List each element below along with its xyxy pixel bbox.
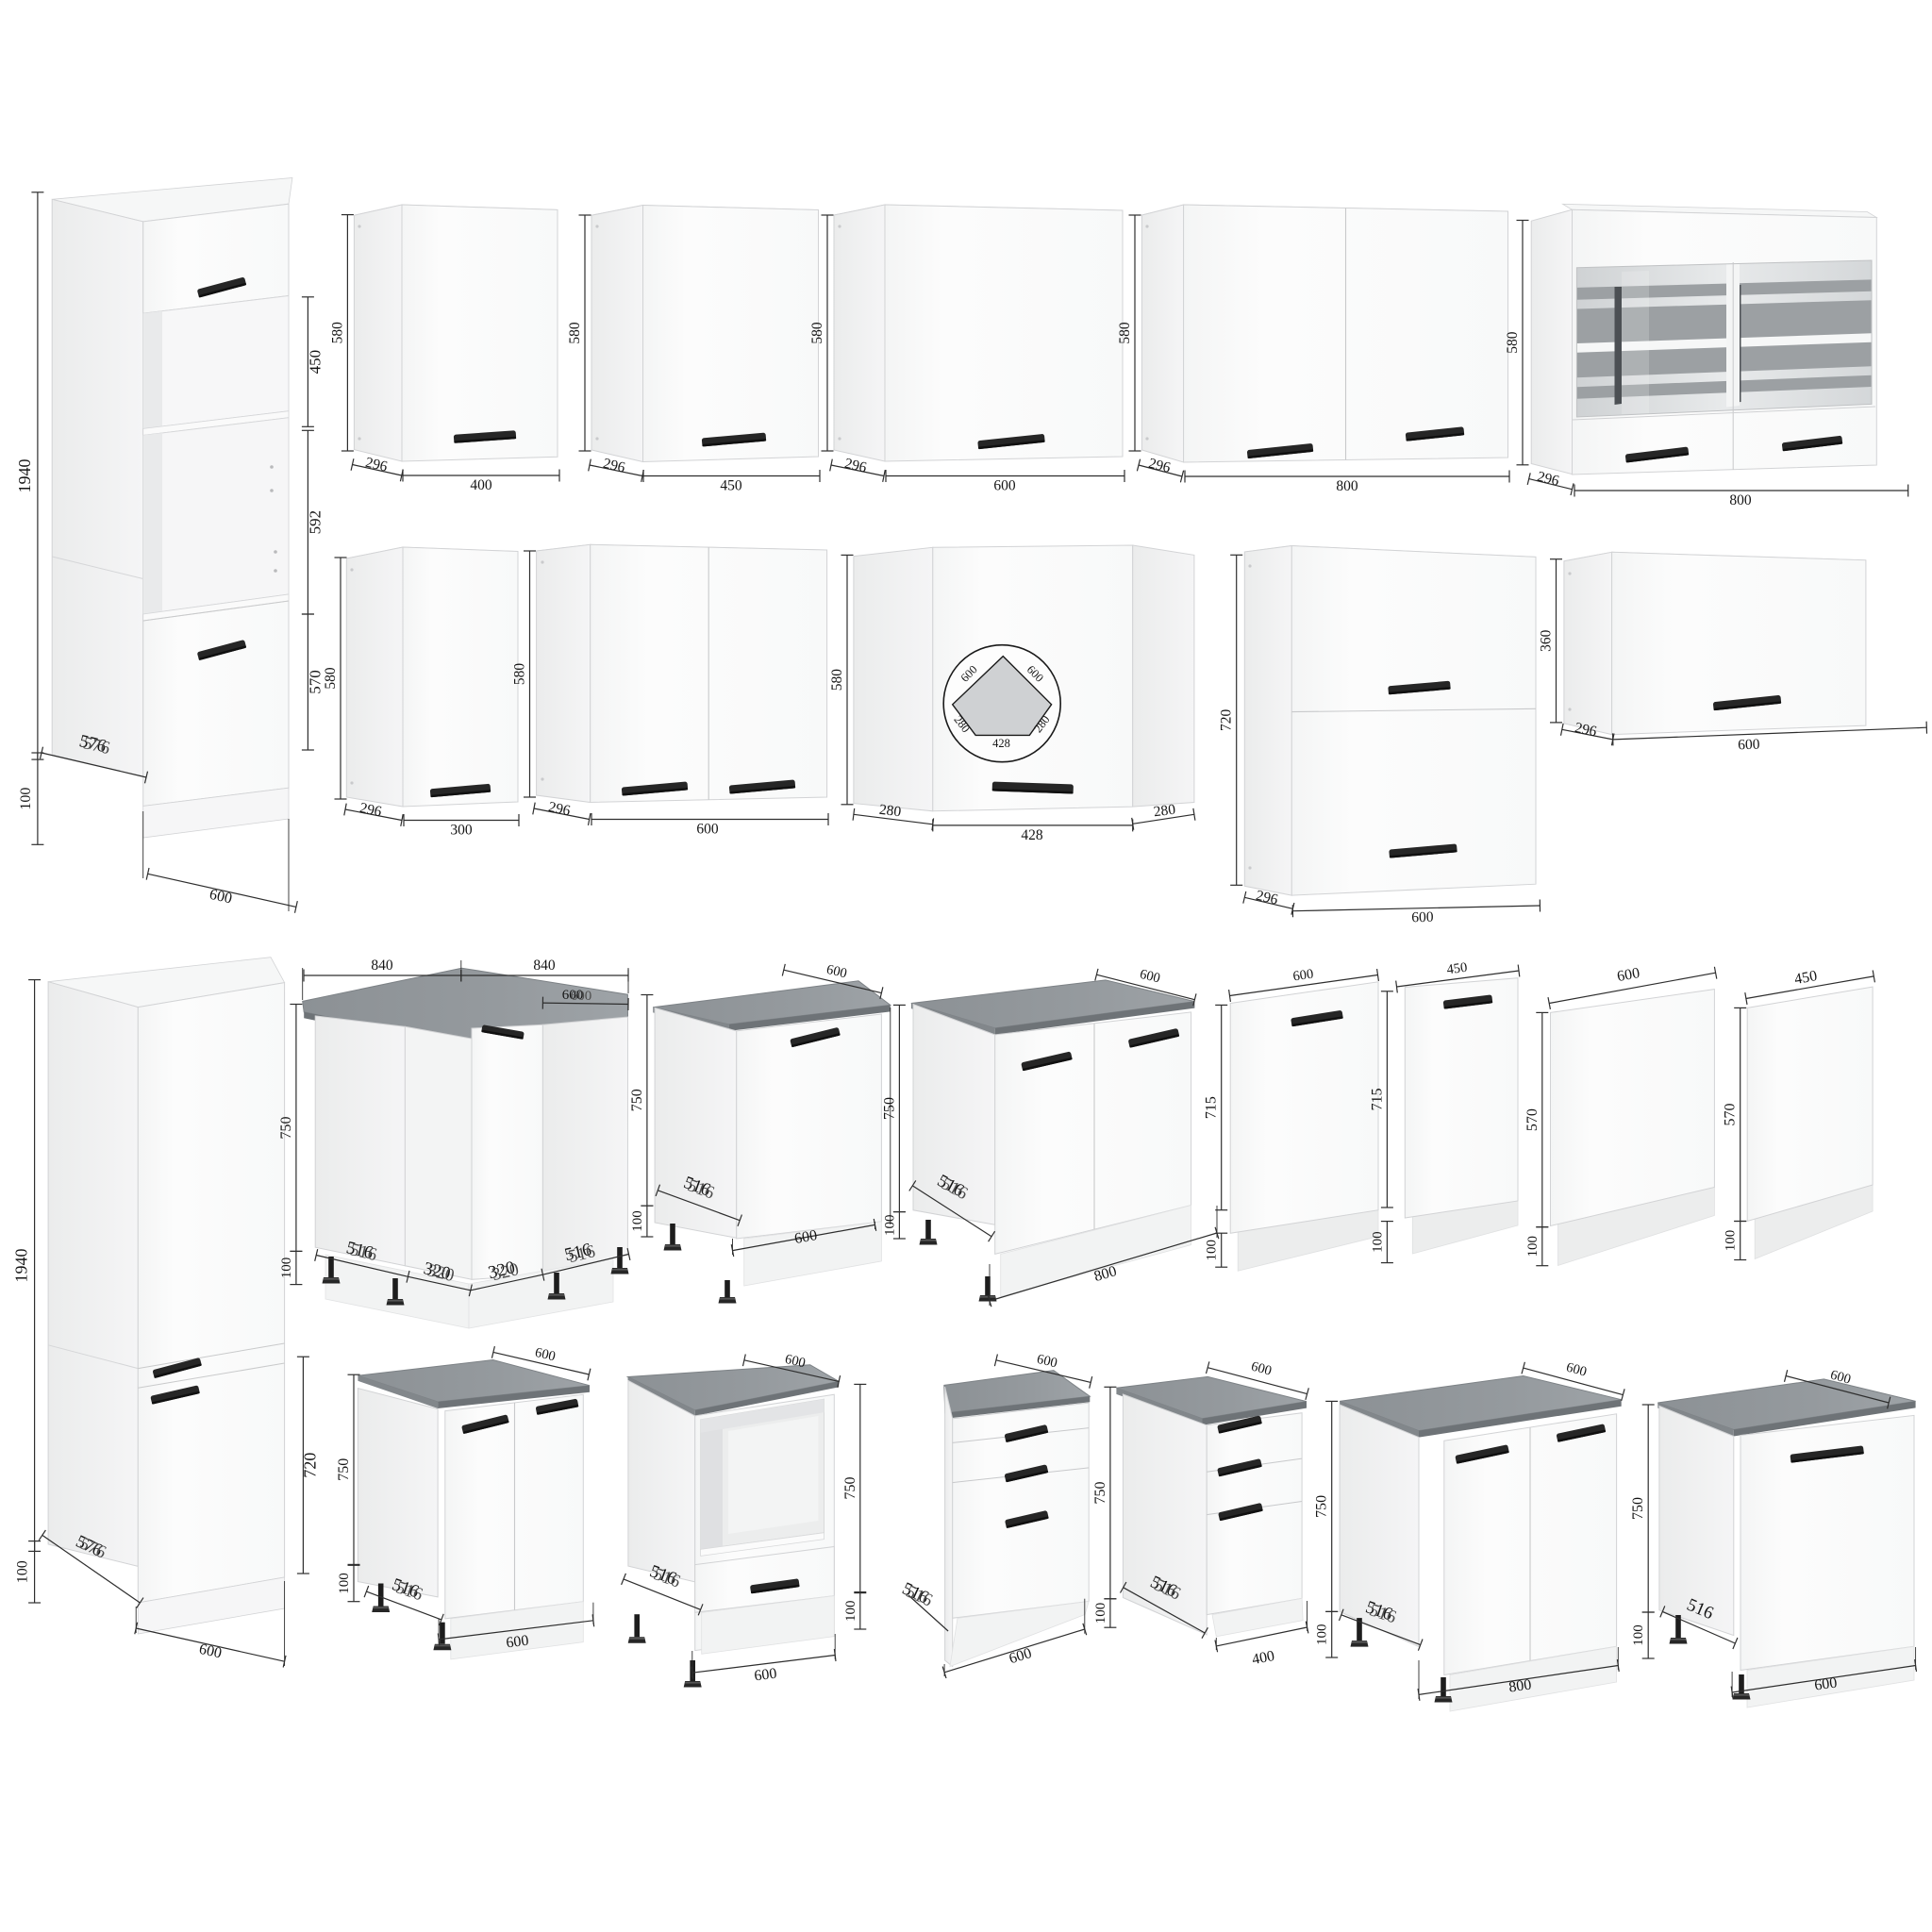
svg-text:360: 360 bbox=[1539, 629, 1555, 652]
svg-text:580: 580 bbox=[329, 322, 345, 344]
svg-text:570: 570 bbox=[1723, 1104, 1739, 1126]
svg-text:570: 570 bbox=[306, 670, 324, 694]
svg-text:1940: 1940 bbox=[12, 1249, 31, 1283]
svg-text:750: 750 bbox=[842, 1477, 858, 1500]
svg-text:750: 750 bbox=[881, 1097, 897, 1120]
svg-text:580: 580 bbox=[1117, 322, 1133, 344]
svg-text:100: 100 bbox=[15, 1560, 31, 1583]
svg-text:600: 600 bbox=[1411, 909, 1434, 925]
svg-text:750: 750 bbox=[278, 1117, 294, 1140]
svg-text:1940: 1940 bbox=[15, 459, 34, 493]
svg-text:715: 715 bbox=[1204, 1096, 1220, 1119]
svg-text:750: 750 bbox=[1314, 1495, 1330, 1518]
svg-text:840: 840 bbox=[533, 958, 556, 974]
svg-text:750: 750 bbox=[336, 1458, 352, 1481]
svg-text:750: 750 bbox=[1630, 1497, 1646, 1520]
svg-text:280: 280 bbox=[878, 802, 902, 821]
svg-text:800: 800 bbox=[1729, 492, 1752, 508]
svg-text:600: 600 bbox=[506, 1633, 530, 1652]
svg-text:600: 600 bbox=[754, 1666, 778, 1685]
svg-text:100: 100 bbox=[1093, 1603, 1108, 1624]
svg-text:300: 300 bbox=[450, 823, 473, 839]
svg-text:280: 280 bbox=[1153, 802, 1176, 821]
svg-text:800: 800 bbox=[1507, 1676, 1532, 1695]
svg-text:600: 600 bbox=[1813, 1674, 1838, 1693]
svg-text:100: 100 bbox=[882, 1215, 897, 1237]
svg-text:450: 450 bbox=[1446, 960, 1469, 978]
svg-text:580: 580 bbox=[567, 322, 583, 344]
svg-text:100: 100 bbox=[630, 1210, 645, 1232]
svg-text:100: 100 bbox=[1205, 1240, 1220, 1261]
svg-text:100: 100 bbox=[1525, 1236, 1541, 1257]
svg-text:750: 750 bbox=[629, 1089, 645, 1111]
svg-text:428: 428 bbox=[992, 737, 1010, 750]
svg-text:720: 720 bbox=[300, 1453, 319, 1478]
svg-text:428: 428 bbox=[1021, 827, 1043, 843]
svg-text:100: 100 bbox=[279, 1257, 294, 1279]
svg-text:100: 100 bbox=[1724, 1230, 1739, 1252]
svg-text:100: 100 bbox=[18, 788, 34, 810]
svg-text:570: 570 bbox=[1524, 1108, 1541, 1131]
svg-text:592: 592 bbox=[306, 510, 324, 535]
svg-text:400: 400 bbox=[470, 477, 492, 493]
svg-text:580: 580 bbox=[809, 322, 825, 344]
svg-text:600: 600 bbox=[993, 478, 1016, 494]
svg-text:580: 580 bbox=[1505, 331, 1521, 354]
svg-text:840: 840 bbox=[371, 958, 393, 974]
svg-text:450: 450 bbox=[720, 478, 742, 494]
svg-text:600: 600 bbox=[1738, 737, 1760, 754]
svg-text:720: 720 bbox=[1219, 708, 1235, 731]
svg-text:600: 600 bbox=[571, 989, 592, 1004]
svg-text:580: 580 bbox=[512, 663, 528, 686]
svg-text:750: 750 bbox=[1092, 1482, 1108, 1505]
svg-text:580: 580 bbox=[829, 669, 845, 691]
svg-text:800: 800 bbox=[1336, 478, 1358, 494]
svg-text:715: 715 bbox=[1369, 1088, 1385, 1110]
svg-text:450: 450 bbox=[306, 350, 324, 375]
svg-text:100: 100 bbox=[1315, 1624, 1330, 1645]
svg-text:100: 100 bbox=[337, 1573, 352, 1594]
svg-text:600: 600 bbox=[696, 822, 719, 838]
svg-text:100: 100 bbox=[843, 1601, 858, 1623]
svg-text:100: 100 bbox=[1370, 1231, 1385, 1253]
svg-text:600: 600 bbox=[1292, 967, 1315, 985]
svg-text:580: 580 bbox=[323, 667, 339, 690]
svg-text:100: 100 bbox=[1631, 1624, 1646, 1646]
